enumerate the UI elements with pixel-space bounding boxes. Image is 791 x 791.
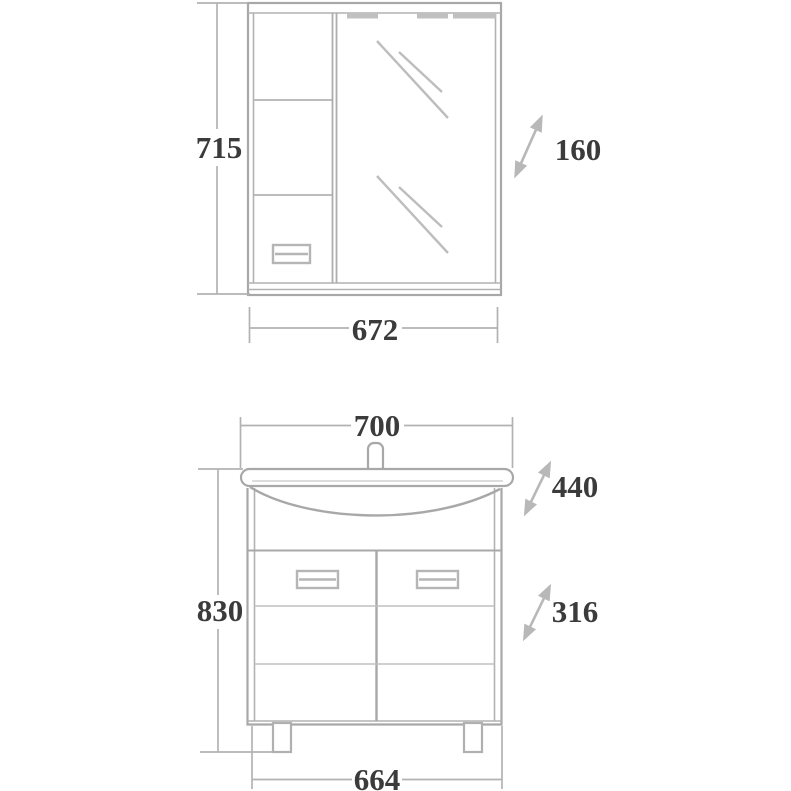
dim-label-vanity-base-width: 664	[354, 762, 401, 791]
dim-label-mirror-height: 715	[196, 130, 243, 165]
dim-label-cabinet-depth: 316	[552, 594, 599, 629]
mirror-cabinet-drawing	[248, 3, 501, 295]
dim-label-sink-width: 700	[354, 408, 401, 443]
technical-drawing-page: 715 672 160	[0, 0, 791, 791]
dim-label-mirror-width: 672	[352, 312, 399, 347]
dim-label-vanity-height: 830	[197, 593, 244, 628]
dim-label-sink-depth: 440	[552, 469, 599, 504]
top-trim-strip-1	[347, 13, 378, 19]
right-door-handle	[417, 571, 458, 588]
top-trim-strip-2	[417, 13, 448, 19]
sink-rim	[241, 469, 513, 486]
dim-label-mirror-depth: 160	[555, 132, 602, 167]
vanity-drawing	[241, 443, 513, 752]
depth-arrow-icon	[508, 112, 548, 181]
left-door-handle	[297, 571, 338, 588]
sink-bowl-curve	[250, 487, 500, 515]
left-leg	[273, 723, 291, 752]
right-leg	[464, 723, 482, 752]
furniture-dimension-diagram: 715 672 160	[0, 0, 791, 791]
top-trim-strip-3	[453, 13, 496, 19]
cabinet-door-handle	[273, 245, 310, 263]
